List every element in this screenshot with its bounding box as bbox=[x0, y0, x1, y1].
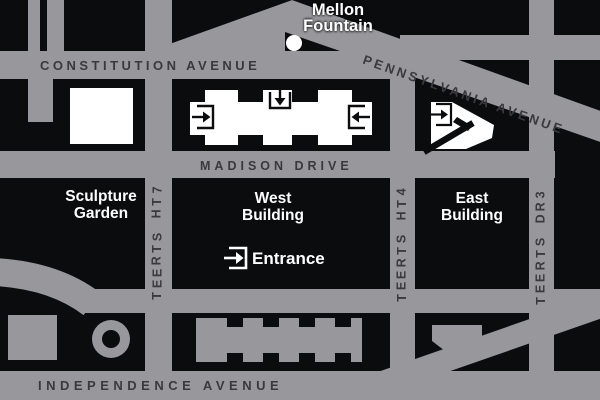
third-street-label: 3RD STREET bbox=[535, 189, 549, 307]
mellon-fountain-label: Mellon Fountain bbox=[299, 2, 377, 34]
east-building-label: East Building bbox=[420, 190, 524, 224]
building-southwest-square bbox=[8, 315, 57, 360]
national-gallery-area-map: CONSTITUTION AVENUE PENNSYLVANIA AVENUE … bbox=[0, 0, 600, 400]
madison-drive-label: MADISON DRIVE bbox=[200, 159, 353, 173]
entrance-label: Entrance bbox=[252, 249, 325, 269]
mellon-fountain-dot bbox=[286, 35, 302, 51]
fourth-street-label: 4TH STREET bbox=[396, 186, 410, 304]
seventh-street-label: 7TH STREET bbox=[151, 184, 165, 302]
building-ring-hole bbox=[102, 330, 120, 348]
sculpture-garden-label: Sculpture Garden bbox=[49, 188, 153, 222]
road-stub-north-b bbox=[47, 0, 64, 51]
west-building-label: West Building bbox=[221, 190, 325, 224]
road-stub-garden bbox=[28, 79, 53, 122]
road-stub-north-a bbox=[28, 0, 40, 51]
independence-avenue-label: INDEPENDENCE AVENUE bbox=[38, 378, 283, 393]
constitution-avenue-label: CONSTITUTION AVENUE bbox=[40, 58, 260, 73]
sculpture-garden-fountain bbox=[70, 88, 133, 144]
